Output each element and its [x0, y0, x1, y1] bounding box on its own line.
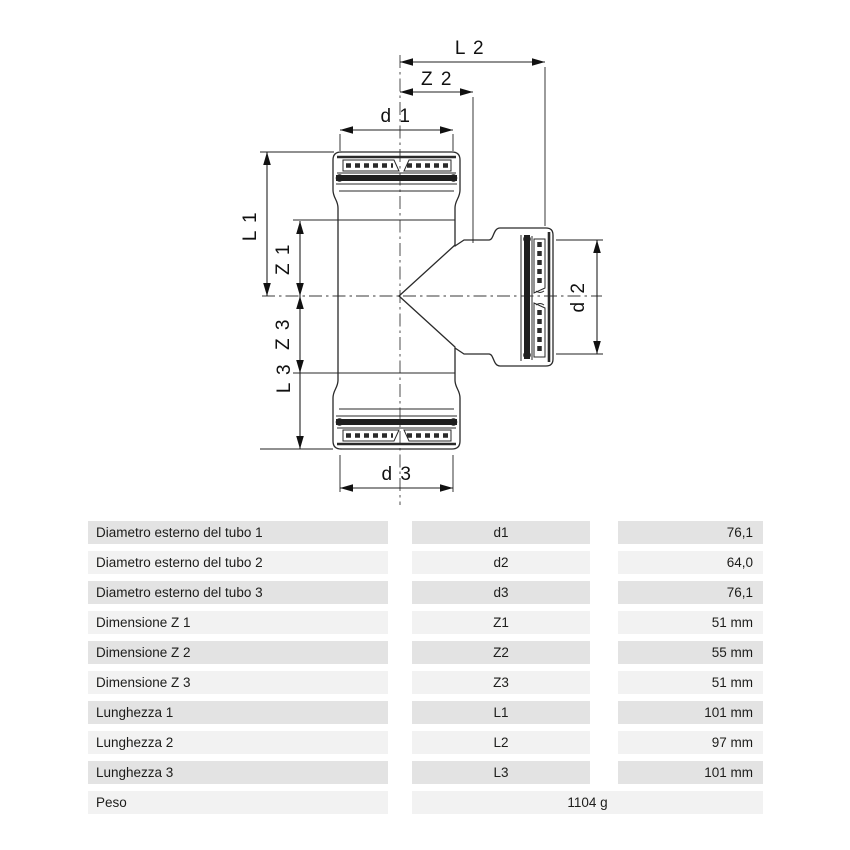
- table-row: Diametro esterno del tubo 3 d3 76,1: [88, 581, 763, 604]
- spec-label: Diametro esterno del tubo 2: [88, 551, 388, 574]
- spec-label: Dimensione Z 2: [88, 641, 388, 664]
- label-d3: d 3: [382, 464, 413, 485]
- label-L3: L 3: [274, 363, 295, 393]
- arrow-d2-bottom: [593, 341, 601, 354]
- table-row: Dimensione Z 2 Z2 55 mm: [88, 641, 763, 664]
- table-row: Dimensione Z 3 Z3 51 mm: [88, 671, 763, 694]
- bottom-seal-band: [336, 419, 457, 425]
- arrow-Z2-right: [460, 88, 473, 96]
- tee-fitting-technical-drawing: L 2 Z 2 d 1 L 1 Z 1 Z 3 L 3 d 2 d 3: [0, 0, 850, 520]
- arrow-d3-right: [440, 484, 453, 492]
- product-spec-page: L 2 Z 2 d 1 L 1 Z 1 Z 3 L 3 d 2 d 3 Diam…: [0, 0, 850, 850]
- branch-outline: [455, 228, 553, 366]
- spec-value: 97 mm: [618, 731, 763, 754]
- top-strip-left: [343, 160, 399, 171]
- table-row: Lunghezza 3 L3 101 mm: [88, 761, 763, 784]
- table-row: Lunghezza 2 L2 97 mm: [88, 731, 763, 754]
- top-oring-right: [450, 174, 458, 182]
- table-row: Diametro esterno del tubo 1 d1 76,1: [88, 521, 763, 544]
- body-left-wall: [333, 152, 341, 449]
- top-seal-band: [336, 175, 457, 181]
- arrow-Z2-left: [400, 88, 413, 96]
- centerlines: [262, 55, 602, 505]
- spec-label: Diametro esterno del tubo 3: [88, 581, 388, 604]
- arrow-Z3-top: [296, 296, 304, 309]
- spec-symbol: Z3: [412, 671, 590, 694]
- spec-symbol: L3: [412, 761, 590, 784]
- arrow-Z1-bottom: [296, 283, 304, 296]
- spec-value: 76,1: [618, 581, 763, 604]
- arrow-d3-left: [340, 484, 353, 492]
- spec-symbol: L2: [412, 731, 590, 754]
- table-row-weight: Peso 1104 g: [88, 791, 763, 814]
- label-L1: L 1: [240, 211, 261, 241]
- seal-rings: [336, 174, 531, 426]
- bottom-strip-left: [343, 430, 399, 441]
- fitting-interior-lines: [293, 157, 549, 444]
- spec-value: 51 mm: [618, 611, 763, 634]
- spec-table: Diametro esterno del tubo 1 d1 76,1 Diam…: [88, 521, 763, 821]
- spec-value: 76,1: [618, 521, 763, 544]
- spec-symbol: d1: [412, 521, 590, 544]
- label-Z1: Z 1: [273, 243, 294, 275]
- arrow-L2-right: [532, 58, 545, 66]
- spec-symbol: Z1: [412, 611, 590, 634]
- arrow-Z3-bottom: [296, 360, 304, 373]
- bottom-oring-left: [336, 418, 344, 426]
- arrow-d1-right: [440, 126, 453, 134]
- fitting-outline: [333, 152, 553, 449]
- label-Z2: Z 2: [421, 69, 453, 90]
- spec-label: Lunghezza 3: [88, 761, 388, 784]
- spec-value: 51 mm: [618, 671, 763, 694]
- table-row: Diametro esterno del tubo 2 d2 64,0: [88, 551, 763, 574]
- cone-lower-line: [399, 296, 455, 347]
- arrow-d1-left: [340, 126, 353, 134]
- cone-upper-line: [399, 245, 455, 296]
- label-d2: d 2: [568, 282, 589, 313]
- arrow-L1-top: [263, 152, 271, 165]
- spec-label: Dimensione Z 3: [88, 671, 388, 694]
- grip-ring-strips: [343, 160, 545, 441]
- spec-label: Peso: [88, 791, 388, 814]
- table-row: Dimensione Z 1 Z1 51 mm: [88, 611, 763, 634]
- spec-label: Dimensione Z 1: [88, 611, 388, 634]
- spec-value: 55 mm: [618, 641, 763, 664]
- spec-symbol: Z2: [412, 641, 590, 664]
- arrow-L3-bottom: [296, 436, 304, 449]
- table-row: Lunghezza 1 L1 101 mm: [88, 701, 763, 724]
- top-oring-left: [336, 174, 344, 182]
- label-Z3: Z 3: [273, 318, 294, 350]
- arrow-d2-top: [593, 240, 601, 253]
- spec-label: Lunghezza 2: [88, 731, 388, 754]
- arrow-L1-bottom: [263, 283, 271, 296]
- spec-label: Lunghezza 1: [88, 701, 388, 724]
- spec-label: Diametro esterno del tubo 1: [88, 521, 388, 544]
- spec-value: 101 mm: [618, 701, 763, 724]
- branch-oring-top: [523, 235, 531, 243]
- branch-seal-band: [524, 235, 530, 359]
- spec-symbol: L1: [412, 701, 590, 724]
- label-L2: L 2: [455, 38, 485, 59]
- spec-value: 101 mm: [618, 761, 763, 784]
- spec-symbol: d2: [412, 551, 590, 574]
- spec-value: 64,0: [618, 551, 763, 574]
- arrow-L2-left: [400, 58, 413, 66]
- spec-weight-value: 1104 g: [412, 791, 763, 814]
- bottom-oring-right: [450, 418, 458, 426]
- spec-symbol: d3: [412, 581, 590, 604]
- dimension-labels: L 2 Z 2 d 1 L 1 Z 1 Z 3 L 3 d 2 d 3: [240, 38, 589, 485]
- branch-oring-bottom: [523, 351, 531, 359]
- arrow-Z1-top: [296, 221, 304, 234]
- label-d1: d 1: [381, 106, 412, 127]
- branch-strip-top: [534, 239, 545, 293]
